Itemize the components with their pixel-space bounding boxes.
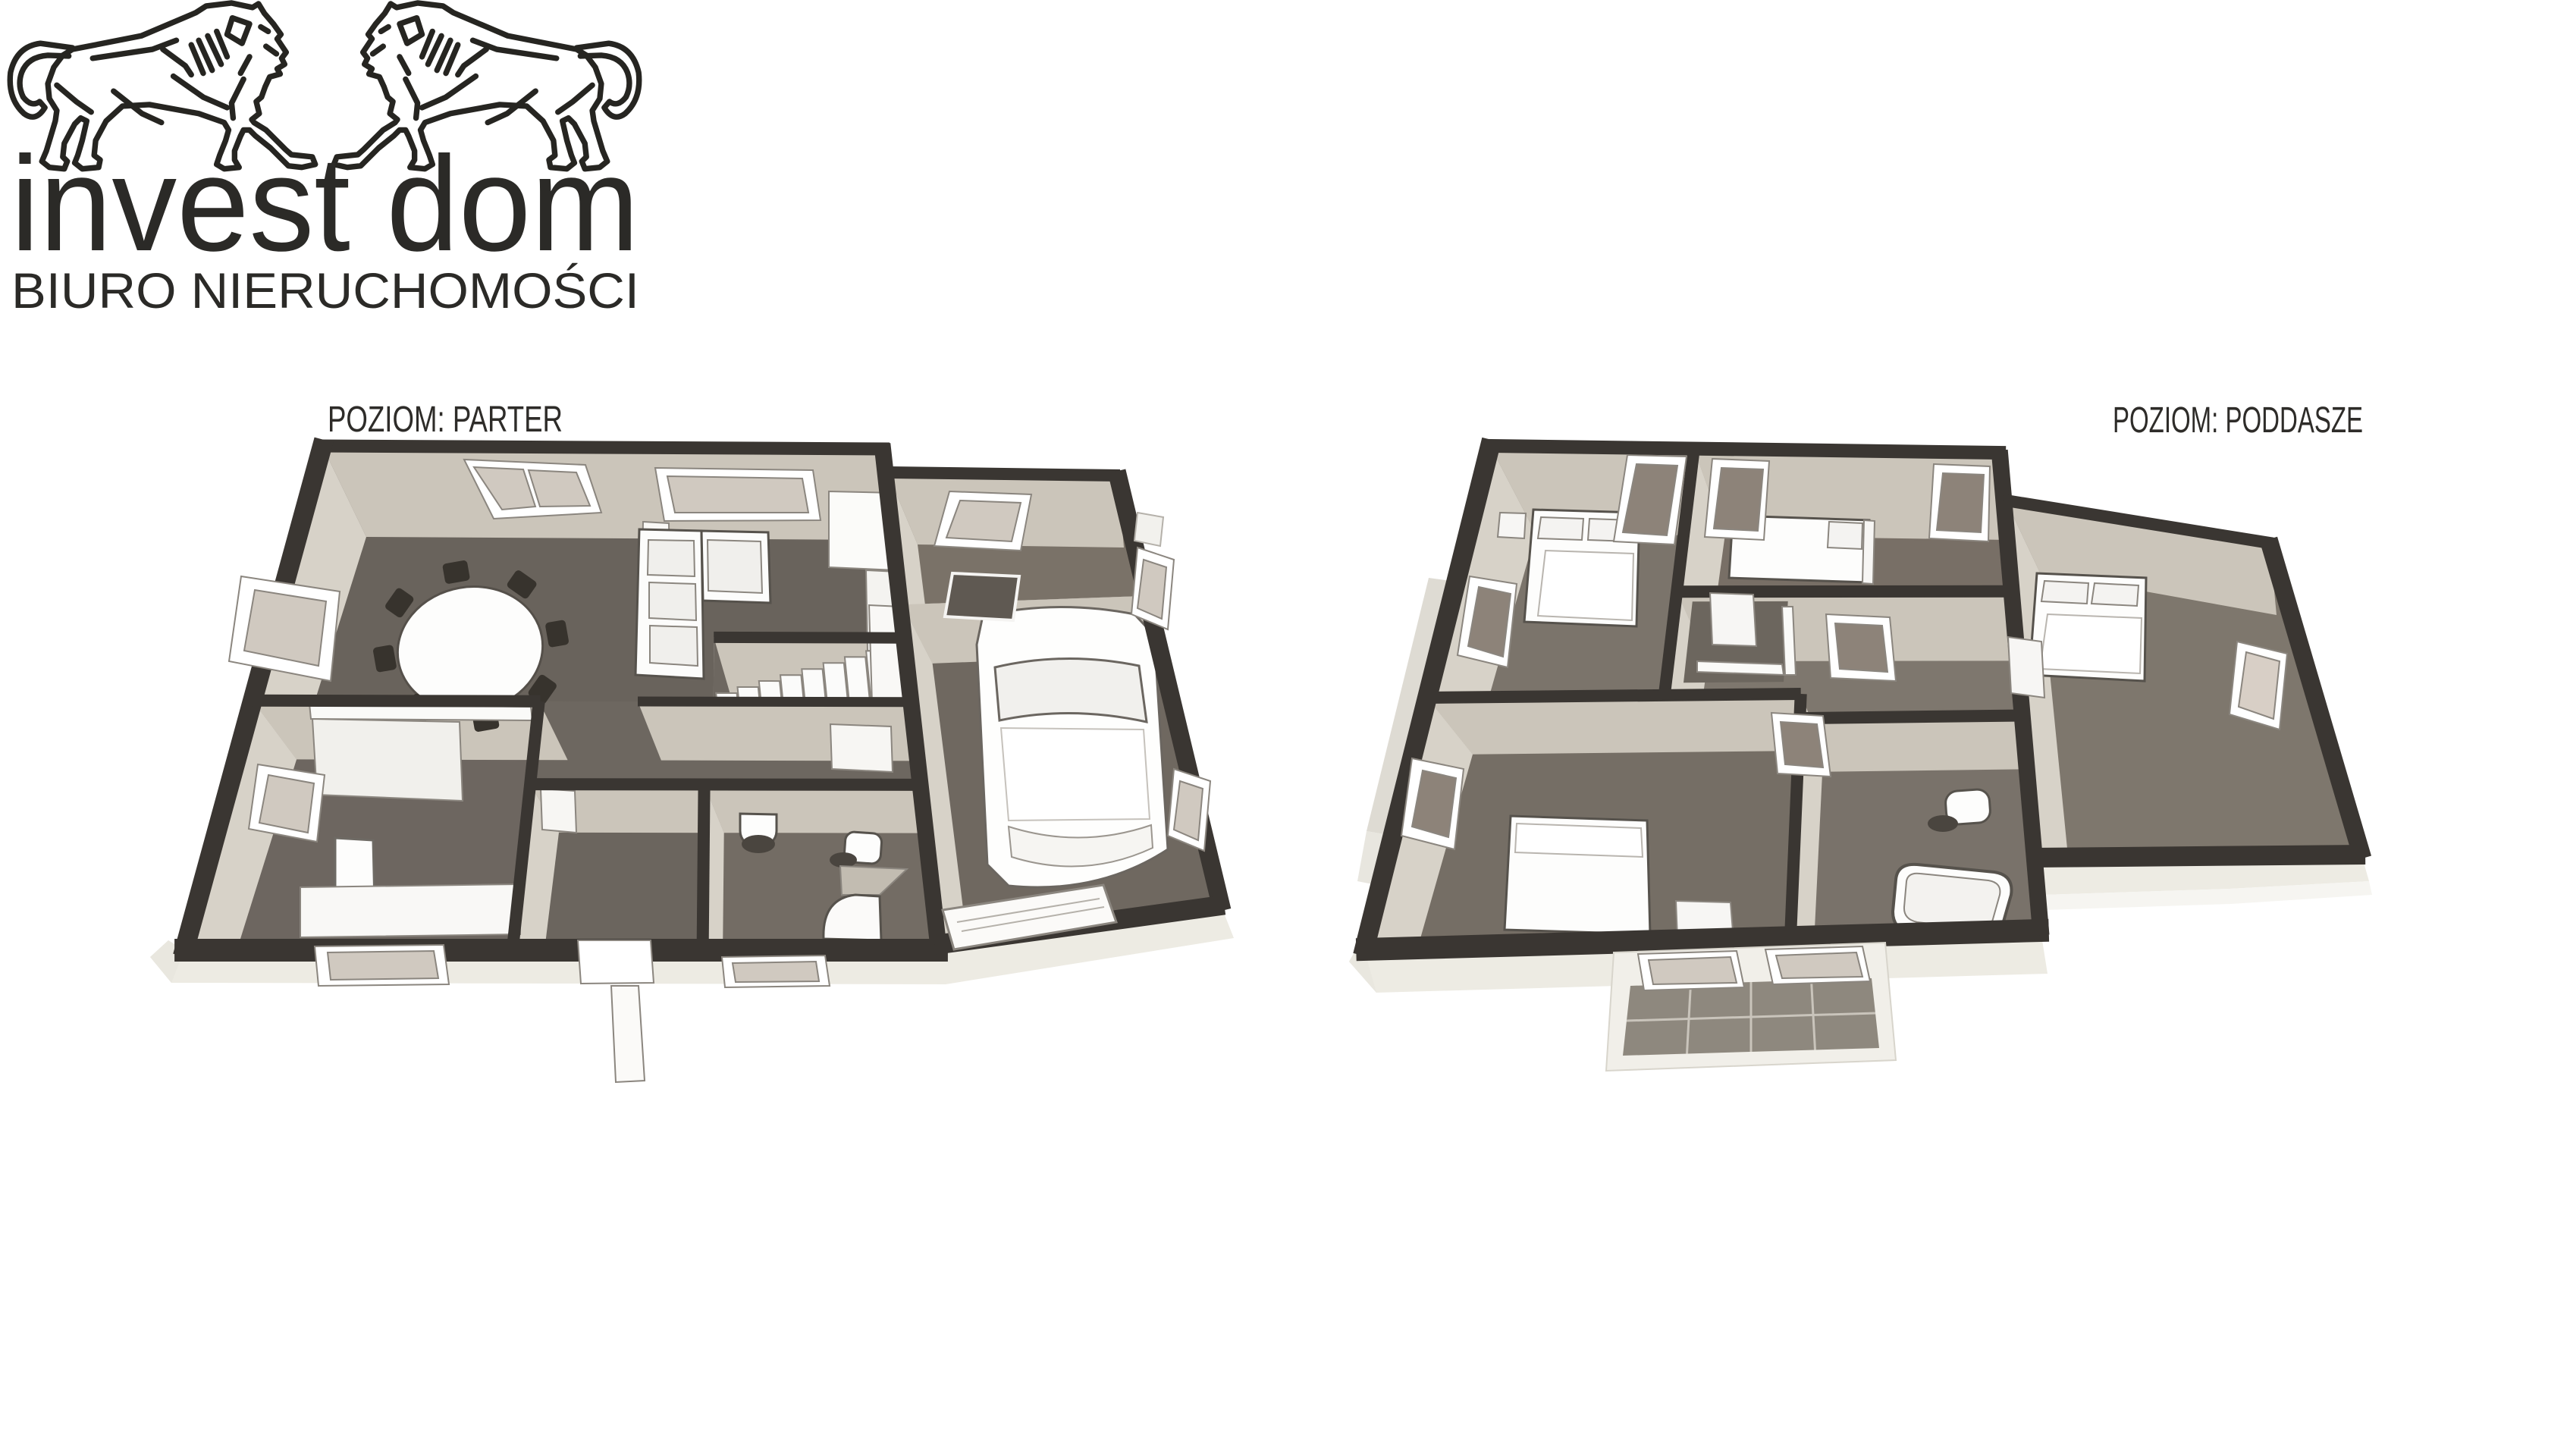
svg-text:POZIOM: PODDASZE: POZIOM: PODDASZE <box>2113 400 2363 441</box>
svg-text:BIURO NIERUCHOMOŚCI: BIURO NIERUCHOMOŚCI <box>11 262 639 318</box>
svg-text:invest dom: invest dom <box>11 128 639 279</box>
svg-text:POZIOM: PARTER: POZIOM: PARTER <box>328 400 563 440</box>
